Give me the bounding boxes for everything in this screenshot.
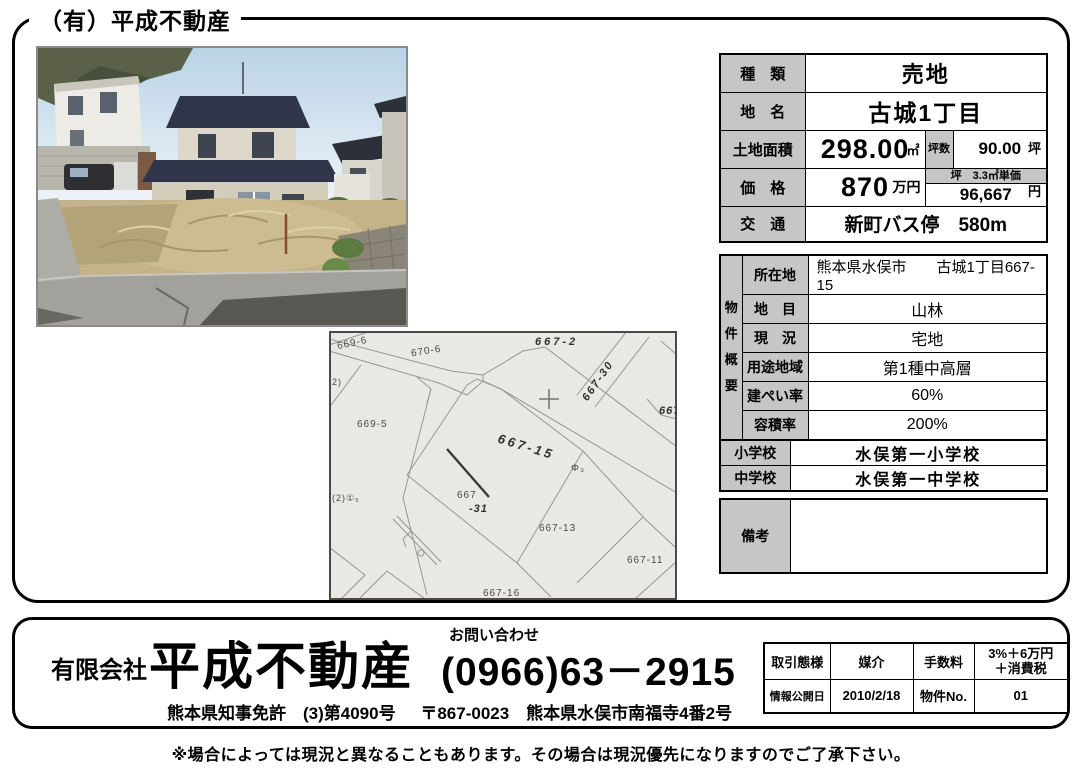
license-number: 熊本県知事免許 (3)第4090号 [167, 704, 396, 723]
property-no-label: 物件No. [913, 679, 974, 713]
school-row-label: 中学校 [720, 466, 790, 492]
school-row-value: 水俣第一小学校 [790, 440, 1047, 466]
deal-type-label: 取引態様 [764, 643, 830, 679]
spec-type-label: 種 類 [720, 54, 805, 92]
map-parcel-label: 667 [457, 490, 477, 501]
map-parcel-label: 667-16 [483, 588, 520, 599]
map-parcel-label: 667-11 [627, 555, 663, 566]
spec-area-label: 土地面積 [720, 130, 805, 168]
map-parcel-label: (2)①₅ [332, 493, 360, 504]
overview-row-label: 建ぺい率 [742, 382, 808, 411]
spec-access-value: 新町バス停 580m [805, 206, 1047, 242]
overview-row-label: 用途地域 [742, 353, 808, 382]
remarks-label: 備考 [720, 499, 790, 573]
spec-tsubo-cell: 90.00 坪 [953, 130, 1047, 168]
deal-type-value: 媒介 [830, 643, 913, 679]
overview-side-label: 物件概要 [720, 255, 742, 440]
map-parcel-label: 2) [332, 377, 342, 387]
deal-info-table: 取引態様 媒介 手数料 3%＋6万円 ＋消費税 情報公開日 2010/2/18 … [763, 642, 1069, 714]
property-photo [36, 46, 408, 327]
phone-number: (0966)63－2915 [441, 641, 736, 697]
spec-type-value: 売地 [805, 54, 1047, 92]
company-prefix: 有限会社 [51, 650, 147, 685]
spec-table: 種 類 売地 地 名 古城1丁目 土地面積 298.00 ㎡ 坪数 90.00 … [719, 53, 1048, 243]
spec-unit-price-unit: 円 [1028, 181, 1041, 203]
cadastral-map: 669-6 670-6 667-2 667-30 667 669-5 667-1… [329, 331, 677, 600]
map-parcel-label: -31 [469, 503, 488, 515]
overview-row-label: 地 目 [742, 295, 808, 324]
spec-area-value: 298.00 [821, 134, 910, 164]
map-parcel-label: 669-5 [357, 419, 388, 430]
spec-price-cell: 870 万円 [805, 168, 925, 206]
property-no-value: 01 [974, 679, 1068, 713]
spec-access-label: 交 通 [720, 206, 805, 242]
school-row-label: 小学校 [720, 440, 790, 466]
overview-row-label: 所在地 [742, 255, 808, 295]
office-address: 〒867-0023 熊本県水俣市南福寺4番2号 [420, 704, 732, 723]
spec-price-value: 870 [841, 172, 889, 202]
spec-unit-price-cell: 坪 3.3㎡単価 96,667 円 [925, 168, 1047, 206]
overview-row-value: 山林 [808, 295, 1047, 324]
photo-illustration [38, 48, 406, 325]
spec-unit-price-value: 96,667 [960, 185, 1012, 204]
spec-price-label: 価 格 [720, 168, 805, 206]
spec-price-unit: 万円 [893, 177, 921, 197]
spec-tsubo-value: 90.00 [978, 139, 1021, 158]
footer-banner: 有限会社 平成不動産 お問い合わせ (0966)63－2915 熊本県知事免許 … [12, 617, 1070, 729]
main-frame: （有）平成不動産 [12, 17, 1070, 603]
spec-area-unit: ㎡ [906, 140, 919, 159]
overview-row-value: 200% [808, 411, 1047, 440]
overview-row-value: 60% [808, 382, 1047, 411]
spec-tsubo-unit: 坪 [1028, 138, 1041, 157]
disclaimer-note: ※場合によっては現況と異なることもあります。その場合は現況優先になりますのでご了… [0, 741, 1082, 765]
agency-header: （有）平成不動産 [29, 2, 241, 36]
remarks-table: 備考 [719, 498, 1048, 574]
spec-area-cell: 298.00 ㎡ [805, 130, 925, 168]
overview-row-value: 宅地 [808, 324, 1047, 353]
publish-date-label: 情報公開日 [764, 679, 830, 713]
map-parcel-label: 667-2 [535, 336, 578, 348]
publish-date-value: 2010/2/18 [830, 679, 913, 713]
fee-value: 3%＋6万円 ＋消費税 [974, 643, 1068, 679]
map-parcel-label: 667 [659, 405, 677, 417]
company-name: 平成不動産 [149, 625, 414, 699]
map-parcel-label: 667-13 [539, 523, 576, 534]
fee-label: 手数料 [913, 643, 974, 679]
overview-row-value: 第1種中高層 [808, 353, 1047, 382]
overview-table: 物件概要 所在地 熊本県水俣市 古城1丁目667-15 地 目 山林 現 況 宅… [719, 254, 1048, 441]
spec-name-value: 古城1丁目 [805, 92, 1047, 130]
spec-unit-price-row: 96,667 円 [926, 184, 1047, 206]
map-parcel-lines [331, 333, 675, 598]
school-row-value: 水俣第一中学校 [790, 466, 1047, 492]
license-line: 熊本県知事免許 (3)第4090号 〒867-0023 熊本県水俣市南福寺4番2… [167, 699, 752, 724]
overview-row-label: 現 況 [742, 324, 808, 353]
schools-table: 小学校 水俣第一小学校 中学校 水俣第一中学校 [719, 439, 1048, 492]
map-survey-mark-label: Φ₃ [571, 463, 585, 474]
overview-row-value: 熊本県水俣市 古城1丁目667-15 [808, 255, 1047, 295]
spec-name-label: 地 名 [720, 92, 805, 130]
spec-tsubo-label: 坪数 [925, 130, 953, 168]
overview-row-label: 容積率 [742, 411, 808, 440]
remarks-value [790, 499, 1047, 573]
